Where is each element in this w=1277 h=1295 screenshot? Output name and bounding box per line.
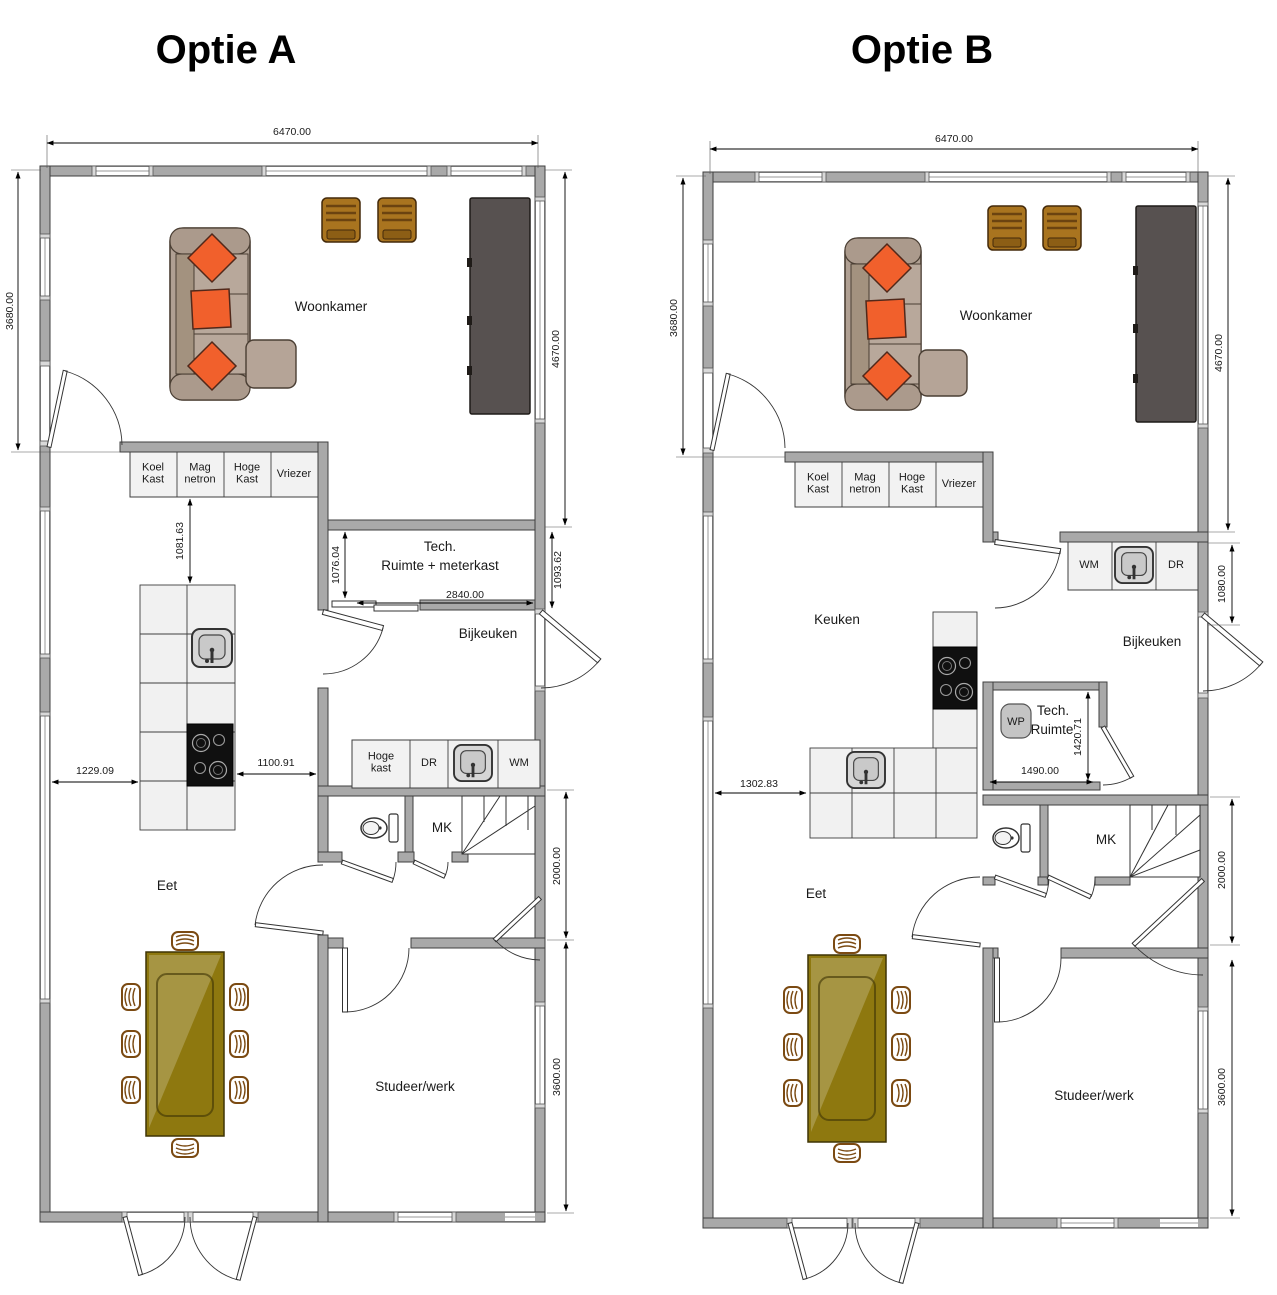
optie-b-room-mk: MK: [1096, 832, 1116, 848]
optie-b-room-eet: Eet: [806, 886, 826, 902]
optie-a-room-eet: Eet: [157, 878, 177, 894]
optie-a-dim-tech-height: 1076.04: [330, 546, 342, 584]
optie-a-appliance-vriezer: Vriezer: [277, 468, 311, 480]
optie-b-armchair: [1043, 206, 1081, 250]
optie-a-appliance-magnetron: Mag netron: [184, 462, 215, 487]
optie-b-dim-counter-height: 1080.00: [1216, 565, 1228, 603]
optie-b-appliance-vriezer: Vriezer: [942, 478, 976, 490]
optie-a-room-tech-line2: Ruimte + meterkast: [381, 558, 498, 574]
optie-a-dim-island-clearance: 1081.63: [174, 522, 186, 560]
optie-b-room-woonkamer: Woonkamer: [960, 308, 1033, 324]
optie-a-dim-study-height: 3600.00: [551, 1058, 563, 1096]
optie-b-appliance-hoge-kast: Hoge Kast: [899, 472, 925, 497]
optie-a-room-bijkeuken: Bijkeuken: [459, 626, 518, 642]
optie-a-tv-cabinet: [467, 198, 530, 414]
optie-b-dim-hall-height: 2000.00: [1216, 851, 1228, 889]
optie-a-dining-set: [122, 932, 248, 1157]
optie-a-armchair: [378, 198, 416, 242]
optie-b-dim-tech-height: 1420.71: [1072, 718, 1084, 756]
optie-b-appliance-wp: WP: [1007, 716, 1025, 728]
cooktop-icon: [933, 647, 977, 709]
optie-b-appliance-wm: WM: [1079, 559, 1099, 571]
optie-b-armchair: [988, 206, 1026, 250]
optie-a-title: Optie A: [156, 27, 297, 73]
optie-b-dim-tech-width: 1490.00: [1021, 765, 1059, 777]
optie-b-room-studeer: Studeer/werk: [1054, 1088, 1134, 1104]
optie-a-toilet-icon: [361, 814, 398, 842]
optie-a-room-tech-line1: Tech.: [424, 539, 456, 555]
optie-a-armchair: [322, 198, 360, 242]
optie-a-room-mk: MK: [432, 820, 452, 836]
optie-b-dim-study-height: 3600.00: [1216, 1068, 1228, 1106]
sink-icon: [454, 745, 492, 781]
optie-b-kitchen-counter: [810, 612, 977, 838]
optie-b-dim-counter-left: 1302.83: [740, 778, 778, 790]
optie-b-tv-cabinet: [1133, 206, 1196, 422]
optie-b-toilet-icon: [993, 824, 1030, 852]
optie-b-dim-top-width: 6470.00: [935, 133, 973, 145]
optie-b-dim-left-height: 3680.00: [668, 299, 680, 337]
optie-b-sofa: [845, 238, 967, 410]
optie-b-title: Optie B: [851, 27, 993, 73]
optie-b-room-bijkeuken: Bijkeuken: [1123, 634, 1182, 650]
optie-b-room-tech-line1: Tech.: [1037, 703, 1069, 719]
optie-a-kitchen-island: [140, 585, 235, 830]
optie-b-appliance-dr: DR: [1168, 559, 1184, 571]
cooktop-icon: [187, 724, 233, 786]
optie-a-appliance-hoge-kast: Hoge Kast: [234, 462, 260, 487]
optie-b-dim-right-height: 4670.00: [1213, 334, 1225, 372]
optie-b-stairs: [1130, 805, 1200, 877]
optie-b-room-keuken: Keuken: [814, 612, 860, 628]
optie-a-dim-hall-height: 2000.00: [551, 847, 563, 885]
optie-a-room-woonkamer: Woonkamer: [295, 299, 368, 315]
floorplan-canvas: Optie A Optie B 6470.00 3680.00 4670.00 …: [0, 0, 1277, 1295]
optie-a-dim-island-right: 1100.91: [257, 757, 294, 769]
optie-a-dim-tech-right: 1093.62: [552, 551, 564, 589]
optie-a-appliance-koelkast: Koel Kast: [142, 462, 164, 487]
optie-a-stairs: [462, 796, 535, 854]
optie-a-dim-right-height: 4670.00: [550, 330, 562, 368]
optie-a-dim-island-left: 1229.09: [76, 765, 114, 777]
optie-b-appliance-magnetron: Mag netron: [849, 472, 880, 497]
optie-a-dim-tech-width: 2840.00: [446, 589, 484, 601]
optie-a-appliance-dr: DR: [421, 757, 437, 769]
optie-b-room-tech-line2: Ruimte: [1031, 722, 1074, 738]
optie-b-appliance-koelkast: Koel Kast: [807, 472, 829, 497]
sink-icon: [847, 752, 885, 788]
optie-b-dining-set: [784, 935, 910, 1162]
sink-icon: [1115, 547, 1153, 583]
optie-a-room-studeer: Studeer/werk: [375, 1079, 455, 1095]
optie-a-appliance-hoge-kast-2: Hoge kast: [368, 751, 394, 776]
optie-a-sofa: [170, 228, 296, 400]
optie-a-dim-left-height: 3680.00: [4, 292, 16, 330]
optie-a-dim-top-width: 6470.00: [273, 126, 311, 138]
sink-icon: [192, 629, 232, 667]
optie-a-appliance-wm: WM: [509, 757, 529, 769]
